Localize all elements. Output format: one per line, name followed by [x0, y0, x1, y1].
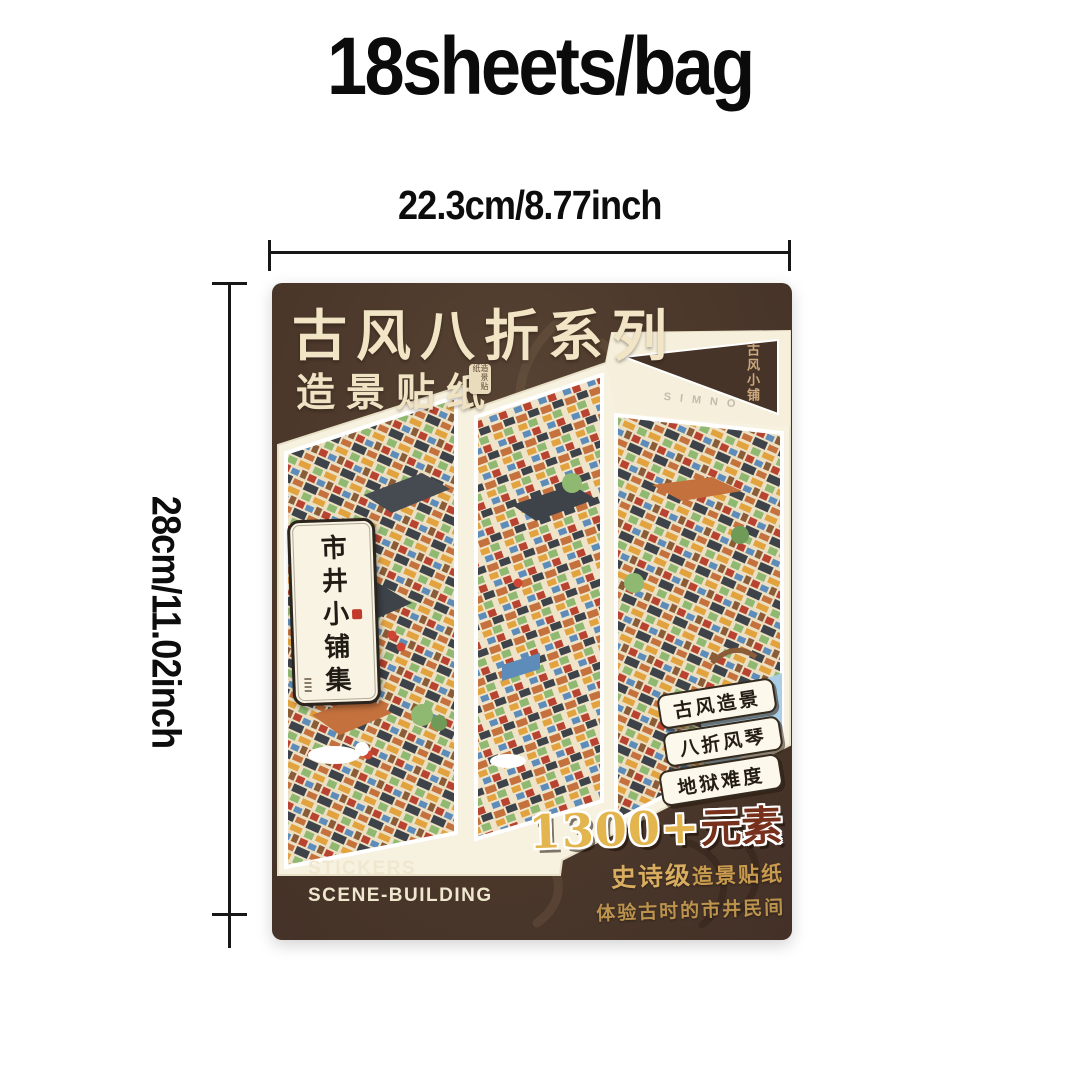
element-count-unit: 元素 — [700, 802, 784, 853]
english-footer: STICKERS SCENE-BUILDING — [308, 855, 493, 910]
series-title: 古风八折系列 — [292, 291, 772, 371]
series-subtitle: 造景贴纸 — [296, 362, 496, 418]
height-dimension-label: 28cm/11.02inch — [143, 479, 190, 766]
scene-panel-middle — [476, 375, 602, 839]
product-photo: 18sheets/bag 22.3cm/8.77inch 28cm/11.02i… — [0, 0, 1080, 1075]
width-measure-line — [270, 251, 790, 254]
height-measure-tick-bottom — [212, 913, 247, 916]
sheet-count-title: 18sheets/bag — [0, 20, 1080, 114]
footer-line-1: STICKERS — [308, 855, 493, 883]
element-count: 1300+ — [528, 799, 701, 859]
corner-calligraphy-mark: 古风小铺 — [742, 343, 761, 403]
plaque-title: 市井小铺集 — [313, 533, 356, 702]
scene-name-plaque: 市井小铺集 — [287, 518, 381, 707]
plaque-red-seal — [352, 609, 362, 619]
width-measure-tick-left — [268, 240, 271, 271]
title-seal-stamp: 造景贴纸 — [469, 364, 491, 394]
sticker-bag-package: 古风八折系列 造景贴纸 造景贴纸 古风小铺 SIMNO 市井小铺集 古风造景 八… — [272, 283, 792, 940]
width-measure-tick-right — [788, 240, 791, 271]
promo-block: 1300+元素 史诗级造景贴纸 体验古时的市井民间 — [528, 801, 786, 929]
height-measure-line — [228, 282, 231, 948]
plaque-small-mark — [304, 678, 312, 694]
height-measure-tick-top — [212, 282, 247, 285]
promo-line-epic: 史诗级造景贴纸 — [530, 853, 785, 898]
sheet-count-text: 18sheets/bag — [327, 20, 753, 114]
footer-line-2: SCENE-BUILDING — [308, 882, 493, 910]
width-dimension-label: 22.3cm/8.77inch — [250, 182, 810, 229]
